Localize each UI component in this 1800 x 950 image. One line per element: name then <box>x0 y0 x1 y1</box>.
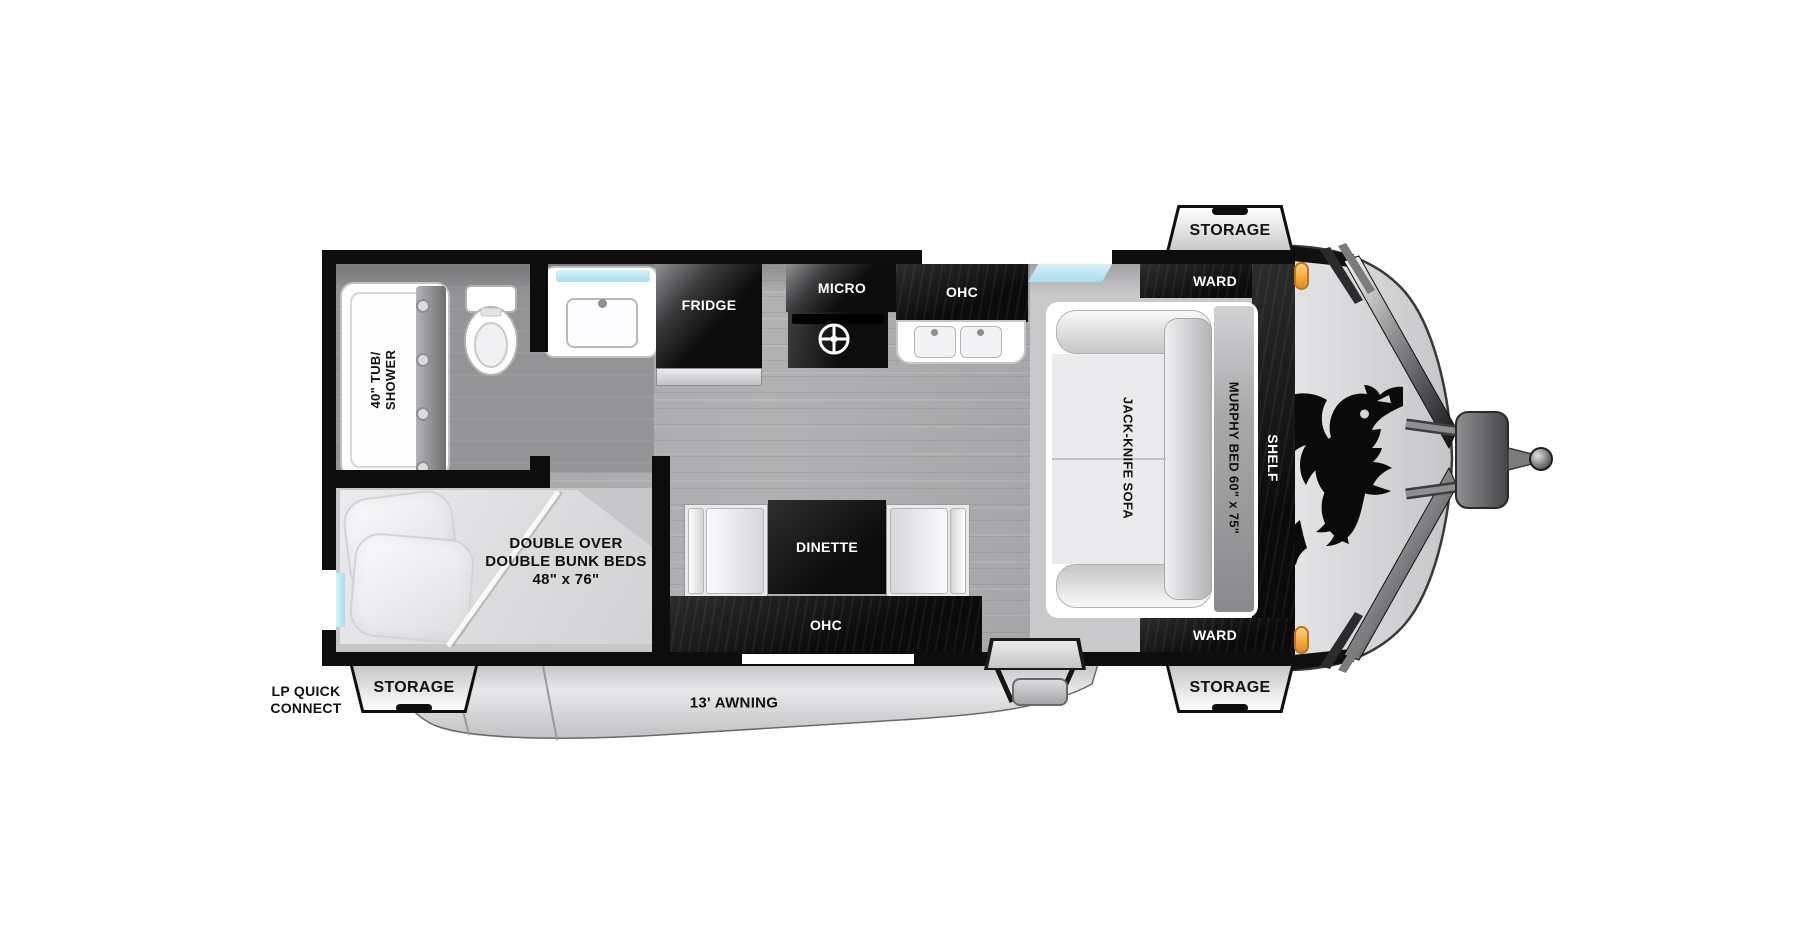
lp-label-line1: LP QUICK <box>246 683 366 700</box>
entry-step <box>1012 678 1068 706</box>
bunk-bed-label: DOUBLE OVER DOUBLE BUNK BEDS 48" x 76" <box>436 535 696 589</box>
bath-door-jamb <box>530 456 550 488</box>
clearance-marker-icon <box>1294 626 1309 654</box>
tub-label: 40" TUB/ SHOWER <box>368 350 398 410</box>
tag-notch <box>1212 704 1248 712</box>
ward-bottom-label: WARD <box>1193 627 1237 643</box>
clearance-marker-icon <box>1294 262 1309 290</box>
bunk-label-line3: 48" x 76" <box>436 571 696 589</box>
jack-knife-sofa-label: JACK-KNIFE SOFA <box>1121 397 1136 519</box>
dinette-window <box>742 654 914 664</box>
burner-icon <box>820 325 848 353</box>
bunk-window <box>322 570 336 630</box>
floorplan-canvas: 40" TUB/ SHOWER FRIDGE MICRO OHC WARD SH… <box>0 0 1800 950</box>
kitchen-window <box>922 250 1112 264</box>
dinette-ohc-label: OHC <box>810 617 842 633</box>
wall-top <box>322 250 1295 264</box>
bath-bottom-wall <box>322 470 550 488</box>
toilet-icon <box>465 286 517 375</box>
tag-notch <box>1212 207 1248 215</box>
bath-partition-wall <box>530 250 548 352</box>
storage-bottom-left-label: STORAGE <box>374 679 455 697</box>
micro-label: MICRO <box>818 280 866 296</box>
kitchen-ohc-label: OHC <box>946 284 978 300</box>
fridge-label: FRIDGE <box>682 297 737 313</box>
entry-door <box>988 641 1082 668</box>
ward-top-label: WARD <box>1193 273 1237 289</box>
awning-label: 13' AWNING <box>690 695 779 712</box>
shelf-label: SHELF <box>1265 434 1281 481</box>
bunk-label-line2: DOUBLE BUNK BEDS <box>436 553 696 571</box>
dinette-label: DINETTE <box>796 539 858 555</box>
storage-top-label: STORAGE <box>1190 222 1271 240</box>
fixture-graphics <box>0 0 1800 950</box>
bunk-label-line1: DOUBLE OVER <box>436 535 696 553</box>
tub-label-line2: SHOWER <box>383 350 398 410</box>
tag-notch <box>396 704 432 712</box>
murphy-bed-label: MURPHY BED 60" x 75" <box>1227 382 1242 534</box>
lp-quick-connect-label: LP QUICK CONNECT <box>246 683 366 717</box>
storage-bottom-right-label: STORAGE <box>1190 679 1271 697</box>
tub-label-line1: 40" TUB/ <box>368 350 383 410</box>
lp-label-line2: CONNECT <box>246 700 366 717</box>
